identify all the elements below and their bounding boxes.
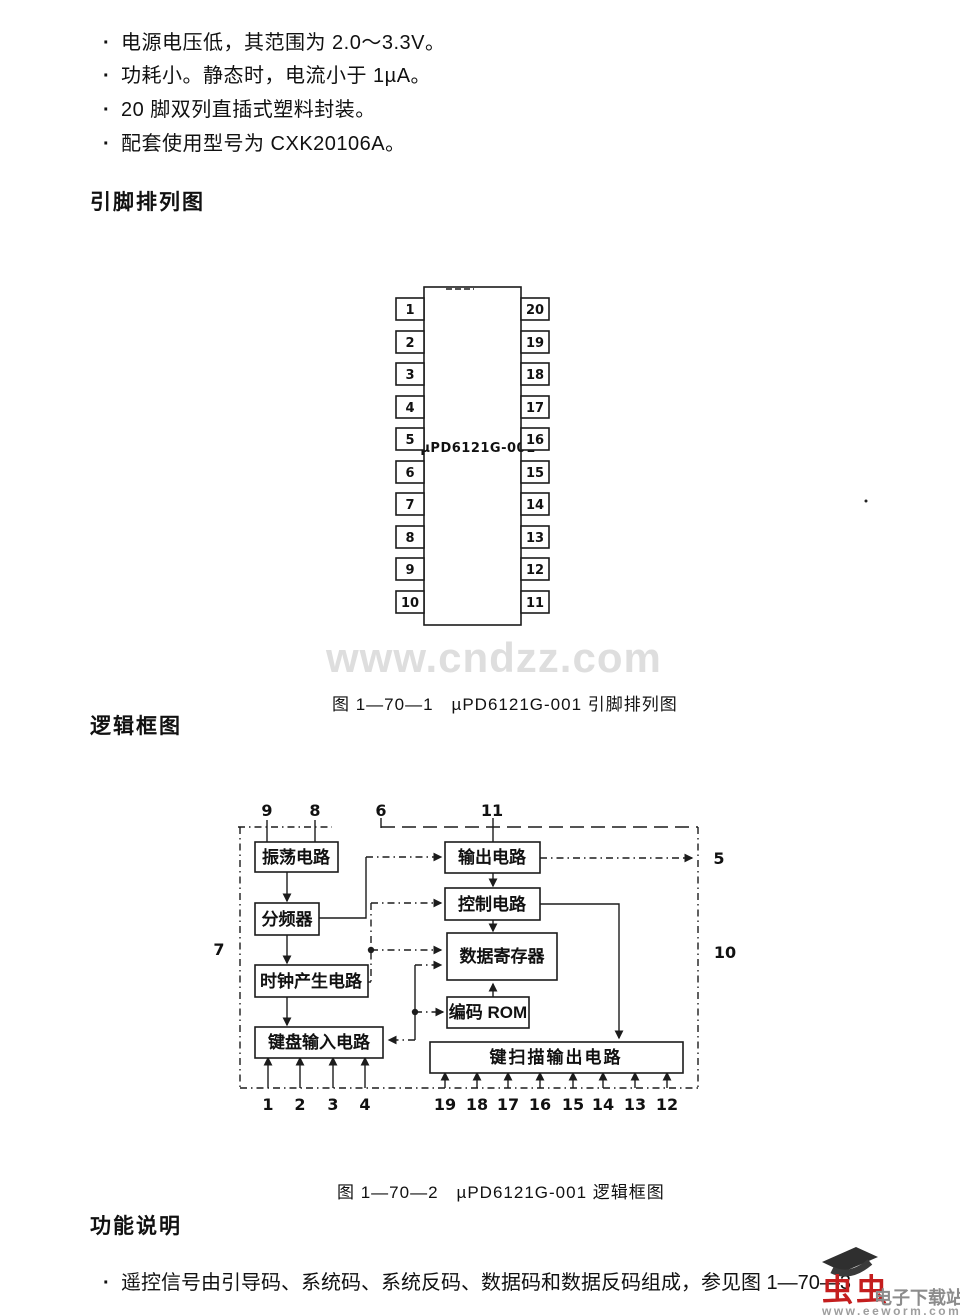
- pin-label-6: 6: [375, 801, 386, 820]
- block-label: 数据寄存器: [460, 946, 546, 966]
- block-label: 键扫描输出电路: [490, 1047, 623, 1067]
- dip-pin-diagram: µPD6121G-001 1 2 3 4 5 6 7 8 9 10 20 19 …: [396, 287, 549, 625]
- block-label: 时钟产生电路: [260, 971, 363, 991]
- pin-label-12: 12: [656, 1095, 678, 1114]
- pin-number: 17: [526, 401, 544, 416]
- pin-label-2: 2: [294, 1095, 305, 1114]
- logic-block-diagram: 振荡电路 分频器 时钟产生电路 键盘输入电路 输出电路 控制电路: [213, 801, 736, 1114]
- pin-number: 18: [526, 368, 544, 383]
- pin-label-4: 4: [359, 1095, 370, 1114]
- chip-label: µPD6121G-001: [420, 441, 535, 456]
- pin-label-7: 7: [213, 940, 224, 959]
- pin-number: 3: [405, 368, 414, 383]
- pin-number: 2: [405, 336, 414, 351]
- scanned-datasheet-page: ·电源电压低，其范围为 2.0～3.3V。 ·功耗小。静态时，电流小于 1µA。…: [0, 0, 960, 1316]
- block-data-register: 数据寄存器: [447, 933, 557, 980]
- pin-label-18: 18: [466, 1095, 488, 1114]
- pin-number: 9: [405, 563, 414, 578]
- pin-number: 20: [526, 303, 544, 318]
- pin-label-16: 16: [529, 1095, 551, 1114]
- block-label: 控制电路: [458, 894, 527, 914]
- block-divider: 分频器: [255, 903, 319, 935]
- pin-number: 1: [405, 303, 414, 318]
- pin-number: 11: [526, 596, 544, 611]
- pin-label-15: 15: [562, 1095, 584, 1114]
- dip-chip-body: [424, 287, 521, 625]
- pin-number: 19: [526, 336, 544, 351]
- block-clock: 时钟产生电路: [255, 965, 368, 997]
- pin-number: 6: [405, 466, 414, 481]
- pin-label-11: 11: [481, 801, 503, 820]
- pin-label-13: 13: [624, 1095, 646, 1114]
- pin-label-8: 8: [309, 801, 320, 820]
- pin-number: 10: [401, 596, 419, 611]
- logo-url: www.eeworm.com: [822, 1304, 960, 1316]
- keyboard-pin-stubs: [268, 1058, 365, 1088]
- site-logo: 虫虫 电子下载站 www.eeworm.com: [812, 1243, 960, 1316]
- block-label: 键盘输入电路: [268, 1032, 371, 1052]
- block-control: 控制电路: [445, 888, 540, 920]
- pin-label-1: 1: [262, 1095, 273, 1114]
- pin-label-17: 17: [497, 1095, 519, 1114]
- pin-label-19: 19: [434, 1095, 456, 1114]
- pin-number: 13: [526, 531, 544, 546]
- block-label: 编码 ROM: [449, 1002, 527, 1022]
- pin-number: 14: [526, 498, 544, 513]
- pin-number: 8: [405, 531, 414, 546]
- pin-number: 15: [526, 466, 544, 481]
- pin-number: 4: [405, 401, 414, 416]
- block-oscillator: 振荡电路: [255, 842, 338, 872]
- pin-number: 5: [405, 433, 414, 448]
- pin-number: 16: [526, 433, 544, 448]
- block-keyscan-output: 键扫描输出电路: [430, 1042, 683, 1073]
- pin-label-3: 3: [327, 1095, 338, 1114]
- pin-label-9: 9: [261, 801, 272, 820]
- block-label: 输出电路: [458, 847, 527, 867]
- pin-label-5: 5: [713, 849, 724, 868]
- block-output: 输出电路: [445, 842, 540, 873]
- pin-number: 7: [405, 498, 414, 513]
- pin-label-14: 14: [592, 1095, 614, 1114]
- pin-label-10: 10: [714, 943, 736, 962]
- scan-speck: [865, 500, 868, 503]
- block-encode-rom: 编码 ROM: [447, 997, 529, 1028]
- pin-number: 12: [526, 563, 544, 578]
- diagrams-layer: µPD6121G-001 1 2 3 4 5 6 7 8 9 10 20 19 …: [0, 0, 960, 1316]
- block-keyboard-input: 键盘输入电路: [255, 1027, 383, 1058]
- block-label: 分频器: [262, 909, 314, 929]
- block-label: 振荡电路: [262, 847, 331, 867]
- keyscan-pin-stubs: [445, 1073, 667, 1088]
